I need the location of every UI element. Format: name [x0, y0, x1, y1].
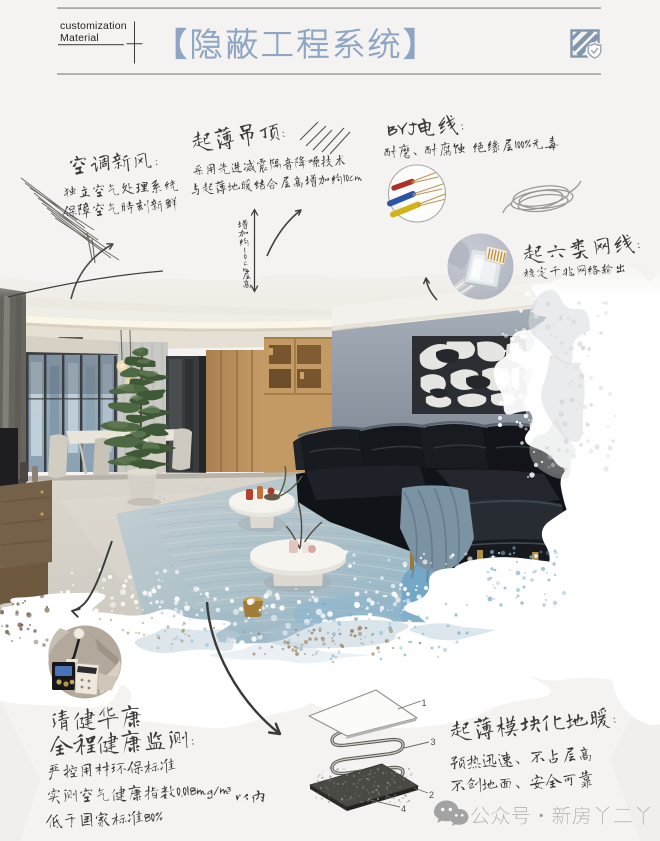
svg-text:Material: Material: [60, 32, 99, 44]
svg-text:2: 2: [429, 790, 434, 800]
svg-text:1: 1: [422, 698, 427, 708]
svg-text:4: 4: [401, 804, 406, 814]
svg-text:3: 3: [431, 737, 436, 747]
svg-text:customization: customization: [60, 20, 127, 32]
